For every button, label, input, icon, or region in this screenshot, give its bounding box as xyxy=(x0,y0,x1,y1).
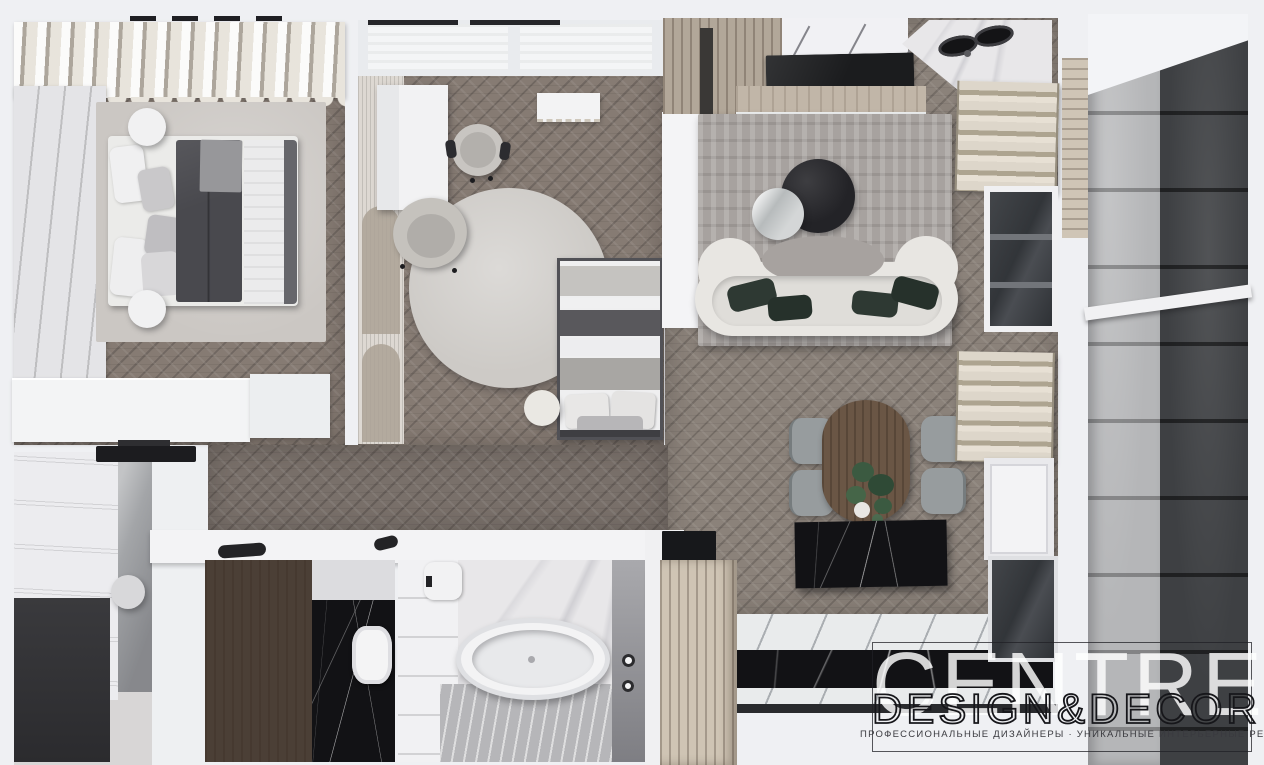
table-plant-leaf xyxy=(868,474,894,496)
watermark-tagline: ПРОФЕССИОНАЛЬНЫЕ ДИЗАЙНЕРЫ · УНИКАЛЬНЫЕ … xyxy=(860,729,1262,740)
balcony-window-glass xyxy=(990,192,1052,326)
shower-fixture xyxy=(622,654,635,667)
coffee-table-mirror xyxy=(752,188,804,240)
kids-armchair-leg xyxy=(400,264,405,269)
table-plant-saucer xyxy=(854,502,870,518)
hallway-bench-black xyxy=(96,446,196,462)
hallway-pouf xyxy=(111,575,145,609)
bedroom-headboard-panel xyxy=(14,86,106,382)
office-chair-leg xyxy=(470,178,475,183)
corridor-floor xyxy=(208,445,668,533)
bedroom-window-slit xyxy=(214,16,240,21)
bedside-pouf xyxy=(128,108,166,146)
bedroom-window-slit xyxy=(130,16,156,21)
kids-bed-foot-band xyxy=(560,266,660,296)
floorplan-render: CENTRE DESIGN&DECOR ПРОФЕССИОНАЛЬНЫЕ ДИЗ… xyxy=(0,0,1264,765)
tv-console xyxy=(736,86,926,114)
kids-bed-sheet xyxy=(560,298,660,308)
shower-fixture xyxy=(622,680,634,692)
kitchen-column-wood xyxy=(660,560,737,765)
bedroom-window-slit xyxy=(172,16,198,21)
window-mullion xyxy=(990,282,1052,288)
kids-bed-headboard xyxy=(560,430,660,437)
wc-wood-wall xyxy=(205,560,312,762)
watermark-subbrand: DESIGN&DECOR xyxy=(872,688,1250,730)
dining-chair xyxy=(921,468,966,514)
wc-toilet xyxy=(352,626,392,684)
bedroom-window-slit xyxy=(256,16,282,21)
hallway-marble-column xyxy=(118,452,152,692)
bathroom-toilet-hinge xyxy=(426,576,432,587)
kitchen-faucet xyxy=(964,50,971,57)
kids-bed-sheet xyxy=(560,338,660,356)
wc-back-wall xyxy=(312,560,395,604)
kids-side-table xyxy=(524,390,560,426)
kidsroom-window-sill xyxy=(520,24,652,70)
kids-armchair-cushion xyxy=(407,214,455,258)
roman-shade xyxy=(955,81,1060,194)
balcony-wood-strip xyxy=(1062,58,1088,238)
bed-frame-edge xyxy=(284,140,297,304)
bed-throw-white xyxy=(244,140,286,304)
sofa-pillow-green xyxy=(767,294,813,322)
kidsroom-window-sill xyxy=(368,24,508,70)
kids-shelf xyxy=(537,93,600,122)
kids-desk-side xyxy=(377,85,399,210)
hallway-wall-white xyxy=(152,452,206,765)
bed-blanket-grey xyxy=(200,140,243,193)
office-chair-cushion xyxy=(460,132,496,168)
white-panel-door xyxy=(984,458,1054,560)
kids-bed-runner xyxy=(560,310,660,336)
kids-bed-duvet xyxy=(560,358,660,390)
hallway-dark-mat xyxy=(14,598,110,762)
bathtub-drain xyxy=(528,656,535,663)
window-mullion xyxy=(990,234,1052,240)
roman-shade xyxy=(955,351,1055,463)
kidsroom-window-slit xyxy=(470,20,560,25)
sideboard-black-marble xyxy=(794,520,947,589)
tv-wall-niche xyxy=(700,28,713,114)
wardrobe-arch-door xyxy=(362,344,400,442)
kids-armchair-leg xyxy=(452,268,457,273)
bedroom-dresser-right xyxy=(250,374,330,438)
bedroom-dresser xyxy=(12,378,250,442)
bedside-pouf xyxy=(128,290,166,328)
kidsroom-window-slit xyxy=(368,20,458,25)
kitchen-column-black-top xyxy=(662,531,716,563)
table-plant-leaf xyxy=(874,498,892,514)
office-chair-leg xyxy=(488,176,493,181)
